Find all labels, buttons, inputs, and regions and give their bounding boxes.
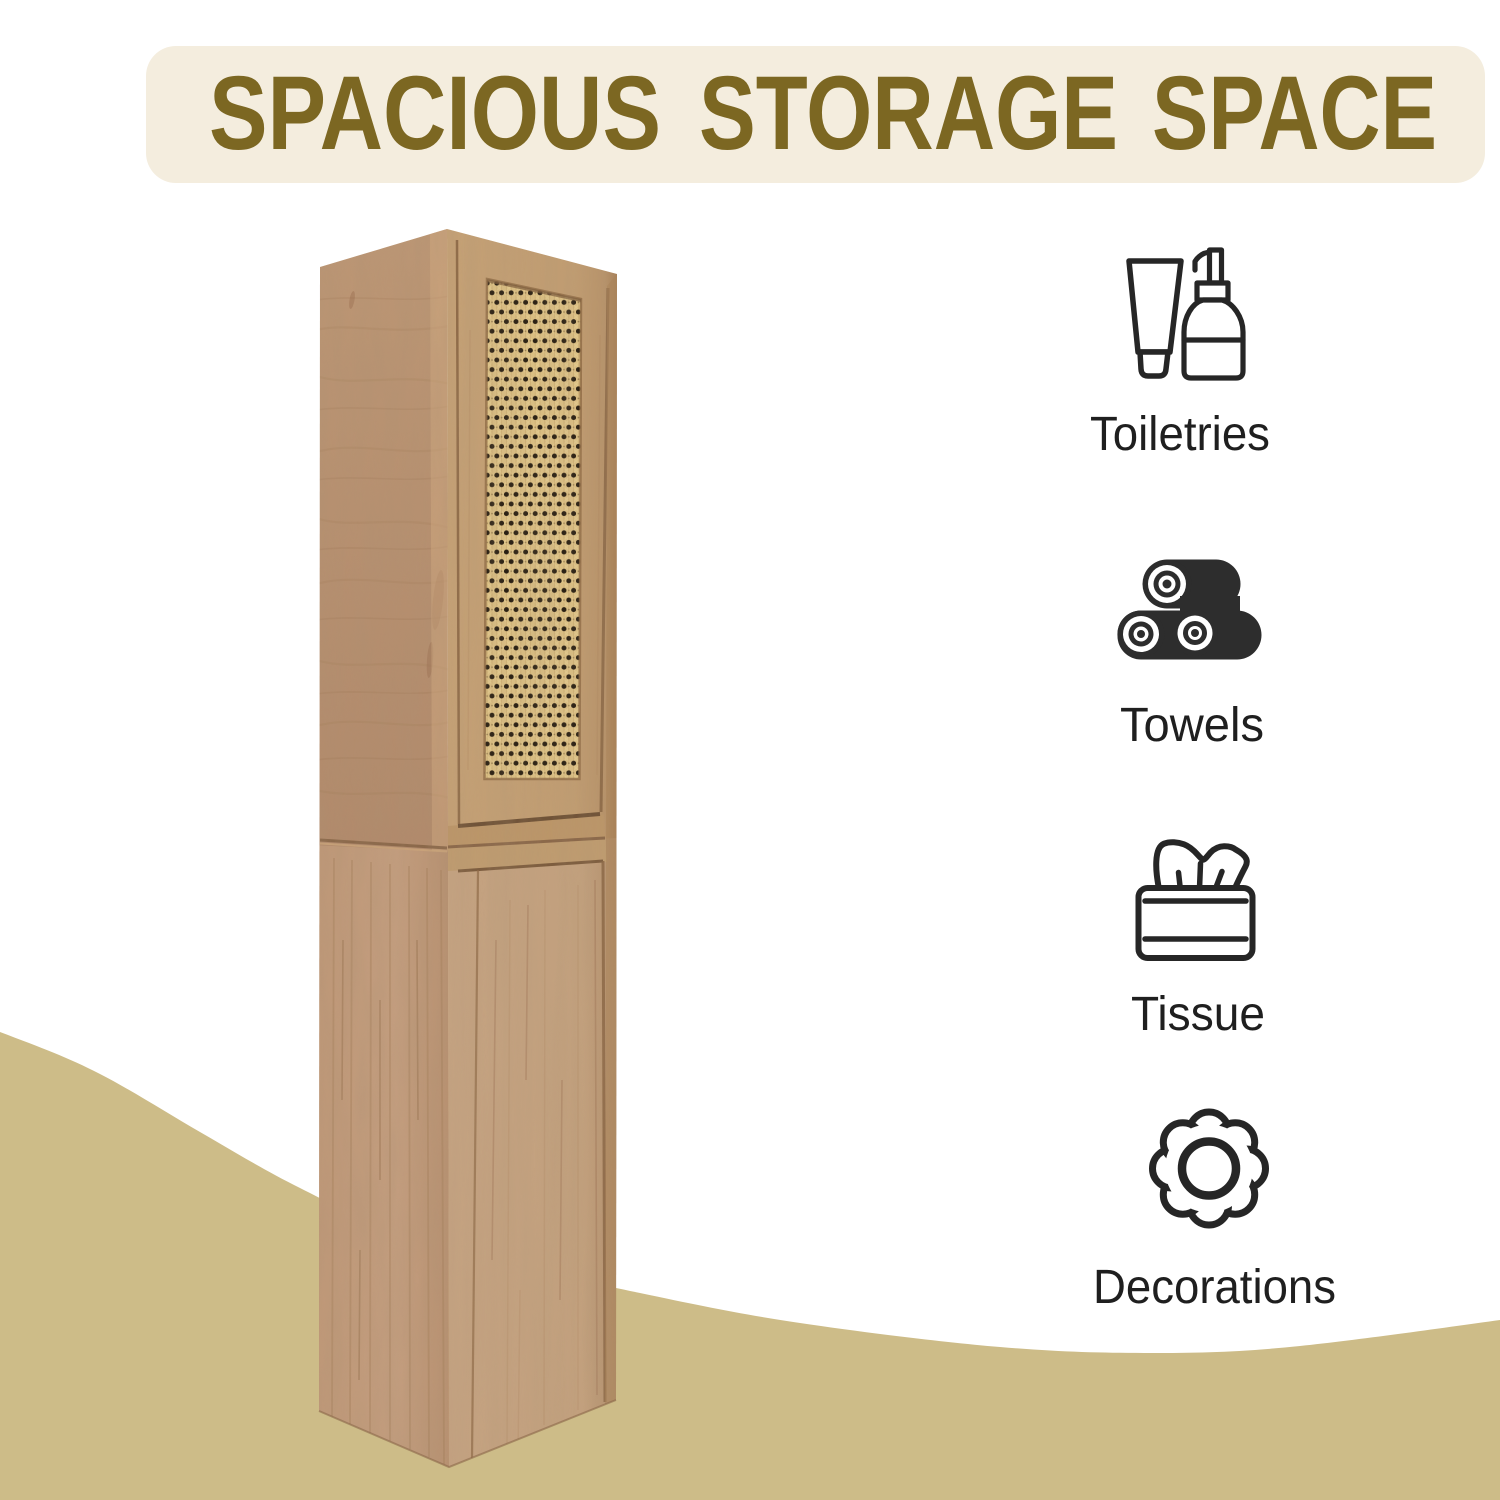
svg-text:Decorations: Decorations [1093, 1261, 1336, 1314]
svg-text:Toiletries: Toiletries [1090, 408, 1270, 461]
svg-text:SPACIOUS: SPACIOUS [209, 55, 661, 172]
svg-text:Towels: Towels [1120, 699, 1264, 752]
svg-text:SPACE: SPACE [1152, 55, 1437, 172]
svg-text:Tissue: Tissue [1131, 988, 1265, 1041]
svg-text:STORAGE: STORAGE [699, 55, 1118, 172]
